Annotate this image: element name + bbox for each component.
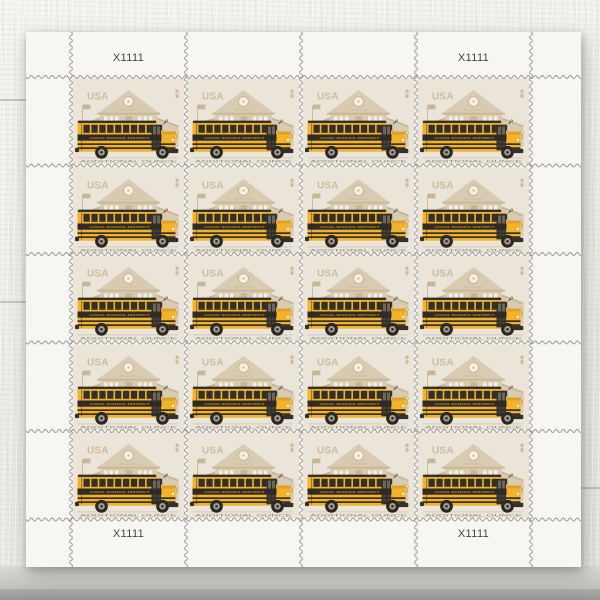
hood-shading <box>277 132 290 135</box>
front-bumper <box>284 237 294 241</box>
crossing-sign-icon <box>406 308 409 311</box>
stamp: SCHOOL USA <box>416 343 531 432</box>
corner-mark <box>291 178 294 187</box>
headlight <box>287 404 289 406</box>
school-sign: SCHOOL <box>119 108 140 112</box>
stamp-artwork: SCHOOL USA <box>71 166 186 255</box>
bus-roofline <box>423 386 502 388</box>
bus-front-wheel <box>501 411 514 424</box>
stamp-artwork: SCHOOL USA <box>301 166 416 255</box>
hood-shading <box>162 397 175 400</box>
bus-windows <box>84 125 154 133</box>
rear-bumper <box>190 148 194 152</box>
bus-roofline <box>423 475 502 477</box>
stamp-sheet: SCHOOL USA <box>26 32 581 567</box>
hood-shading <box>277 220 290 223</box>
bus-rear-wheel <box>325 146 338 159</box>
bus-front-wheel <box>156 500 169 513</box>
hood-shading <box>507 132 520 135</box>
hood-shading <box>162 486 175 489</box>
school-sign: SCHOOL <box>119 462 140 466</box>
flag-icon <box>83 105 91 110</box>
front-bumper <box>514 414 524 418</box>
stamp: SCHOOL USA <box>71 254 186 343</box>
crossing-arm <box>292 399 293 405</box>
crossing-sign-icon <box>291 131 294 134</box>
usa-text: USA <box>317 357 339 368</box>
bus-side-text: LOCAL SCHOOL DISTRICT <box>320 402 380 406</box>
flag-icon <box>83 193 91 198</box>
flag-icon <box>198 193 206 198</box>
corner-mark <box>291 90 294 99</box>
hood-shading <box>507 220 520 223</box>
front-bumper <box>399 149 409 153</box>
bus-roofline <box>78 475 157 477</box>
hood-shading <box>392 309 405 312</box>
headlight <box>517 404 519 406</box>
usa-text: USA <box>202 92 224 103</box>
stamp-artwork: SCHOOL USA <box>416 166 531 255</box>
school-sign: SCHOOL <box>119 374 140 378</box>
mirror-icon <box>166 385 168 387</box>
bus-rear-wheel <box>210 234 223 247</box>
corner-mark <box>291 444 294 453</box>
front-bumper <box>284 503 294 507</box>
bus-windows <box>199 213 269 221</box>
front-bumper <box>169 326 179 330</box>
mirror-icon <box>281 385 283 387</box>
bus-roofline <box>78 121 157 123</box>
usa-text: USA <box>202 269 224 280</box>
flag-icon <box>313 459 321 464</box>
corner-mark <box>521 178 524 187</box>
crossing-sign-icon <box>291 308 294 311</box>
usa-text: USA <box>317 446 339 457</box>
bus-rear-wheel <box>210 411 223 424</box>
mirror-icon <box>396 120 398 122</box>
bus-rear-wheel <box>440 323 453 336</box>
flag-icon <box>428 193 436 198</box>
headlight <box>287 227 289 229</box>
front-bumper <box>399 237 409 241</box>
bus-front-wheel <box>271 500 284 513</box>
bus-roofline <box>308 121 387 123</box>
stamp-artwork: SCHOOL USA <box>301 254 416 343</box>
corner-mark <box>521 90 524 99</box>
bus-roofline <box>308 386 387 388</box>
bus-side-text: LOCAL SCHOOL DISTRICT <box>90 490 150 494</box>
school-sign: SCHOOL <box>234 197 255 201</box>
bus-rear-wheel <box>440 234 453 247</box>
rub-rail-upper <box>423 497 521 499</box>
bus-side-text: LOCAL SCHOOL DISTRICT <box>320 136 380 140</box>
front-bumper <box>284 149 294 153</box>
rub-rail-upper <box>308 320 406 322</box>
bus-windows <box>84 302 154 310</box>
school-sign: SCHOOL <box>349 197 370 201</box>
bus-rear-wheel <box>440 411 453 424</box>
plate-number-bottom-right: X1111 <box>416 528 531 540</box>
stamp: SCHOOL USA <box>71 166 186 255</box>
bus-roofline <box>423 209 502 211</box>
headlight <box>287 316 289 318</box>
caption-text: ADDITIONAL OUNCE <box>195 248 294 252</box>
stamp-artwork: SCHOOL USA <box>301 77 416 166</box>
crossing-sign-icon <box>521 220 524 223</box>
crossing-arm <box>522 134 523 140</box>
crossing-arm <box>177 311 178 317</box>
stamp-artwork: SCHOOL USA <box>71 431 186 520</box>
usa-text: USA <box>87 180 109 191</box>
bus-rear-wheel <box>325 323 338 336</box>
usa-text: USA <box>202 180 224 191</box>
bus-front-wheel <box>501 234 514 247</box>
stamp-artwork: SCHOOL USA <box>186 431 301 520</box>
corner-mark <box>521 444 524 453</box>
corner-mark <box>406 178 409 187</box>
headlight <box>517 493 519 495</box>
school-sign: SCHOOL <box>234 462 255 466</box>
rub-rail-upper <box>308 497 406 499</box>
bus-rear-wheel <box>95 234 108 247</box>
front-bumper <box>399 503 409 507</box>
hood-shading <box>277 397 290 400</box>
bus-windows <box>84 213 154 221</box>
bus-rear-wheel <box>210 146 223 159</box>
crossing-sign-icon <box>406 397 409 400</box>
mirror-icon <box>511 208 513 210</box>
corner-mark <box>176 267 179 276</box>
front-bumper <box>399 326 409 330</box>
bus-rear-wheel <box>440 146 453 159</box>
headlight <box>517 139 519 141</box>
stamp-artwork: SCHOOL USA <box>301 431 416 520</box>
crossing-sign-icon <box>291 220 294 223</box>
mirror-icon <box>511 297 513 299</box>
rear-bumper <box>305 236 309 240</box>
rear-bumper <box>190 325 194 329</box>
hood-shading <box>507 486 520 489</box>
bus-windows <box>429 479 499 487</box>
caption-text: ADDITIONAL OUNCE <box>195 513 294 517</box>
crossing-arm <box>407 134 408 140</box>
usa-text: USA <box>317 180 339 191</box>
flag-icon <box>198 105 206 110</box>
bus-roofline <box>193 386 271 388</box>
bus-windows <box>314 390 384 398</box>
rub-rail-upper <box>423 409 521 411</box>
headlight <box>172 139 174 141</box>
flag-icon <box>198 370 206 375</box>
bus-roofline <box>193 209 271 211</box>
hood-shading <box>277 309 290 312</box>
crossing-sign-icon <box>176 397 179 400</box>
rub-rail-upper <box>308 143 406 145</box>
caption-text: ADDITIONAL OUNCE <box>80 513 179 517</box>
crossing-arm <box>407 311 408 317</box>
bus-front-wheel <box>501 146 514 159</box>
caption-text: ADDITIONAL OUNCE <box>80 425 179 429</box>
photo-background: { "sheet": { "grid": { "rows": 5, "cols"… <box>0 0 600 600</box>
crossing-sign-icon <box>521 485 524 488</box>
rear-bumper <box>420 236 424 240</box>
headlight <box>517 227 519 229</box>
bus-roofline <box>308 298 387 300</box>
bus-roofline <box>78 298 157 300</box>
stamp: SCHOOL USA <box>416 166 531 255</box>
caption-text: ADDITIONAL OUNCE <box>310 513 409 517</box>
headlight <box>287 139 289 141</box>
usa-text: USA <box>432 357 454 368</box>
stamp-artwork: SCHOOL USA <box>71 77 186 166</box>
stamp: SCHOOL USA <box>416 77 531 166</box>
bus-rear-wheel <box>210 323 223 336</box>
corner-mark <box>406 355 409 364</box>
corner-mark <box>176 444 179 453</box>
headlight <box>172 316 174 318</box>
hood-shading <box>392 132 405 135</box>
flag-icon <box>428 459 436 464</box>
rub-rail-upper <box>78 320 176 322</box>
bus-roofline <box>423 121 502 123</box>
crossing-sign-icon <box>176 485 179 488</box>
mirror-icon <box>511 385 513 387</box>
bus-side-text: LOCAL SCHOOL DISTRICT <box>435 313 495 317</box>
stamp-artwork: SCHOOL USA <box>416 254 531 343</box>
flag-icon <box>83 282 91 287</box>
bus-windows <box>314 213 384 221</box>
caption-text: ADDITIONAL OUNCE <box>310 248 409 252</box>
headlight <box>172 227 174 229</box>
rub-rail-upper <box>423 143 521 145</box>
front-bumper <box>284 414 294 418</box>
stamp-artwork: SCHOOL USA <box>186 343 301 432</box>
usa-text: USA <box>432 92 454 103</box>
rear-bumper <box>75 148 79 152</box>
caption-text: ADDITIONAL OUNCE <box>80 159 179 163</box>
headlight <box>172 493 174 495</box>
bus-front-wheel <box>271 234 284 247</box>
bus-rear-wheel <box>95 323 108 336</box>
bus-front-wheel <box>386 146 399 159</box>
corner-mark <box>521 267 524 276</box>
school-sign: SCHOOL <box>464 197 485 201</box>
stamp: SCHOOL USA <box>301 166 416 255</box>
bus-side-text: LOCAL SCHOOL DISTRICT <box>435 136 495 140</box>
bus-front-wheel <box>386 234 399 247</box>
bus-front-wheel <box>501 323 514 336</box>
flag-icon <box>428 282 436 287</box>
corner-mark <box>521 355 524 364</box>
crossing-arm <box>292 134 293 140</box>
mirror-icon <box>511 474 513 476</box>
bus-roofline <box>193 121 271 123</box>
caption-text: ADDITIONAL OUNCE <box>425 513 524 517</box>
bus-front-wheel <box>156 234 169 247</box>
stamp: SCHOOL USA <box>186 343 301 432</box>
bus-side-text: LOCAL SCHOOL DISTRICT <box>90 136 150 140</box>
stamp-artwork: SCHOOL USA <box>416 431 531 520</box>
stamp: SCHOOL USA <box>71 431 186 520</box>
usa-text: USA <box>317 92 339 103</box>
hood-shading <box>507 309 520 312</box>
rub-rail-upper <box>78 232 176 234</box>
rear-bumper <box>420 325 424 329</box>
bus-front-wheel <box>271 411 284 424</box>
flag-icon <box>428 370 436 375</box>
crossing-sign-icon <box>406 220 409 223</box>
rear-bumper <box>420 413 424 417</box>
rear-bumper <box>75 413 79 417</box>
usa-text: USA <box>87 269 109 280</box>
mirror-icon <box>166 120 168 122</box>
bus-windows <box>429 302 499 310</box>
bus-rear-wheel <box>440 500 453 513</box>
school-sign: SCHOOL <box>464 374 485 378</box>
rear-bumper <box>75 502 79 506</box>
bus-windows <box>314 302 384 310</box>
rear-bumper <box>305 325 309 329</box>
rear-bumper <box>190 502 194 506</box>
bus-rear-wheel <box>325 411 338 424</box>
mirror-icon <box>281 208 283 210</box>
bus-rear-wheel <box>325 234 338 247</box>
bus-roofline <box>193 298 271 300</box>
rear-bumper <box>75 325 79 329</box>
rub-rail-upper <box>193 320 291 322</box>
caption-text: ADDITIONAL OUNCE <box>425 425 524 429</box>
bus-windows <box>84 479 154 487</box>
bus-front-wheel <box>271 323 284 336</box>
hood-shading <box>392 397 405 400</box>
mirror-icon <box>396 208 398 210</box>
crossing-arm <box>407 399 408 405</box>
bus-windows <box>429 125 499 133</box>
caption-text: ADDITIONAL OUNCE <box>310 425 409 429</box>
stamp: SCHOOL USA <box>186 166 301 255</box>
flag-icon <box>83 370 91 375</box>
caption-text: ADDITIONAL OUNCE <box>195 425 294 429</box>
bus-side-text: LOCAL SCHOOL DISTRICT <box>205 313 265 317</box>
plate-number-bottom-left: X1111 <box>71 528 186 540</box>
crossing-arm <box>407 488 408 494</box>
stamp-artwork: SCHOOL USA <box>71 254 186 343</box>
crossing-arm <box>177 399 178 405</box>
headlight <box>517 316 519 318</box>
crossing-arm <box>177 134 178 140</box>
bus-roofline <box>308 475 387 477</box>
school-sign: SCHOOL <box>234 374 255 378</box>
flag-icon <box>313 282 321 287</box>
mirror-icon <box>281 474 283 476</box>
headlight <box>402 227 404 229</box>
crossing-sign-icon <box>521 308 524 311</box>
headlight <box>402 493 404 495</box>
crossing-sign-icon <box>406 485 409 488</box>
wood-table-lower <box>0 566 600 600</box>
crossing-sign-icon <box>176 308 179 311</box>
usa-text: USA <box>317 269 339 280</box>
stamp: SCHOOL USA <box>301 77 416 166</box>
crossing-arm <box>522 311 523 317</box>
rub-rail-upper <box>78 409 176 411</box>
mirror-icon <box>396 385 398 387</box>
flag-icon <box>83 459 91 464</box>
corner-mark <box>176 90 179 99</box>
stamp: SCHOOL USA <box>71 343 186 432</box>
bus-roofline <box>423 298 502 300</box>
rub-rail-upper <box>308 409 406 411</box>
rear-bumper <box>420 148 424 152</box>
crossing-arm <box>522 399 523 405</box>
front-bumper <box>514 503 524 507</box>
flag-icon <box>198 282 206 287</box>
bus-front-wheel <box>156 411 169 424</box>
crossing-arm <box>522 222 523 228</box>
school-sign: SCHOOL <box>119 197 140 201</box>
hood-shading <box>392 486 405 489</box>
bus-front-wheel <box>386 411 399 424</box>
front-bumper <box>169 237 179 241</box>
usa-text: USA <box>87 92 109 103</box>
bus-front-wheel <box>156 323 169 336</box>
bus-rear-wheel <box>95 411 108 424</box>
front-bumper <box>169 503 179 507</box>
school-sign: SCHOOL <box>349 108 370 112</box>
front-bumper <box>284 326 294 330</box>
bus-side-text: LOCAL SCHOOL DISTRICT <box>205 225 265 229</box>
wood-plank-seam <box>581 487 600 489</box>
mirror-icon <box>166 297 168 299</box>
school-sign: SCHOOL <box>349 285 370 289</box>
rub-rail-upper <box>193 232 291 234</box>
bus-windows <box>199 390 269 398</box>
bus-side-text: LOCAL SCHOOL DISTRICT <box>435 225 495 229</box>
stamp: SCHOOL USA <box>186 77 301 166</box>
corner-mark <box>406 267 409 276</box>
bus-side-text: LOCAL SCHOOL DISTRICT <box>90 225 150 229</box>
crossing-arm <box>292 222 293 228</box>
school-sign: SCHOOL <box>464 108 485 112</box>
usa-text: USA <box>202 446 224 457</box>
hood-shading <box>277 486 290 489</box>
stamp-artwork: SCHOOL USA <box>186 166 301 255</box>
rub-rail-upper <box>78 497 176 499</box>
stamp: SCHOOL USA <box>301 254 416 343</box>
mirror-icon <box>396 297 398 299</box>
school-sign: SCHOOL <box>464 462 485 466</box>
school-sign: SCHOOL <box>119 285 140 289</box>
bus-roofline <box>308 209 387 211</box>
stamp-artwork: SCHOOL USA <box>186 254 301 343</box>
plate-number-top-right: X1111 <box>416 52 531 64</box>
rear-bumper <box>305 413 309 417</box>
caption-text: ADDITIONAL OUNCE <box>310 336 409 340</box>
stamp-artwork: SCHOOL USA <box>416 343 531 432</box>
mirror-icon <box>511 120 513 122</box>
hood-shading <box>507 397 520 400</box>
usa-text: USA <box>87 446 109 457</box>
front-bumper <box>514 149 524 153</box>
corner-mark <box>291 267 294 276</box>
front-bumper <box>399 414 409 418</box>
stamp: SCHOOL USA <box>416 254 531 343</box>
school-sign: SCHOOL <box>464 285 485 289</box>
bus-windows <box>199 479 269 487</box>
mirror-icon <box>396 474 398 476</box>
bus-side-text: LOCAL SCHOOL DISTRICT <box>435 490 495 494</box>
bus-side-text: LOCAL SCHOOL DISTRICT <box>435 402 495 406</box>
